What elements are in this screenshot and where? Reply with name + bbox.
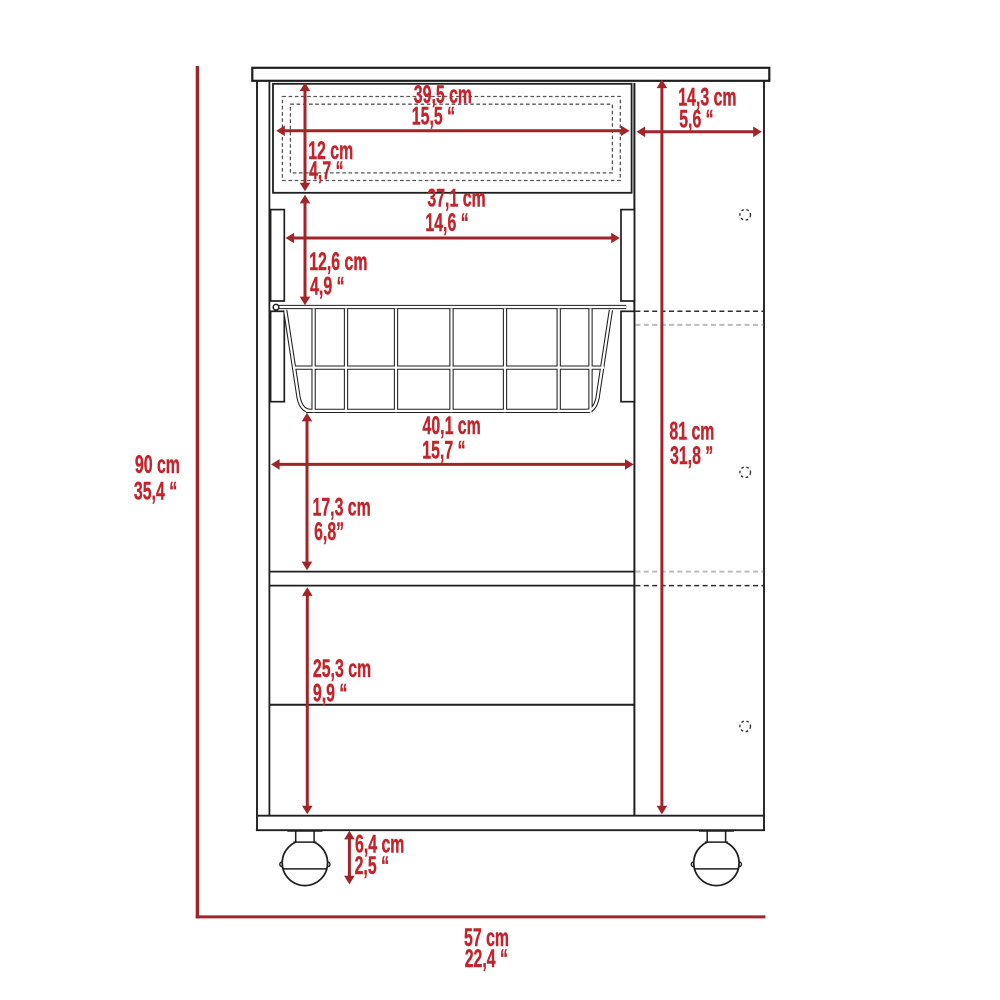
svg-text:81 cm: 81 cm <box>669 418 714 445</box>
svg-text:4,7 “: 4,7 “ <box>309 158 343 185</box>
svg-text:17,3 cm: 17,3 cm <box>313 494 371 521</box>
svg-text:6,8”: 6,8” <box>314 519 344 546</box>
svg-text:5,6 “: 5,6 “ <box>679 106 713 133</box>
svg-text:14,6 “: 14,6 “ <box>425 210 468 237</box>
svg-text:9,9 “: 9,9 “ <box>313 680 347 707</box>
svg-text:25,3 cm: 25,3 cm <box>313 656 371 683</box>
svg-text:15,7 “: 15,7 “ <box>422 437 465 464</box>
svg-text:35,4 “: 35,4 “ <box>134 478 177 505</box>
svg-text:31,8 ”: 31,8 ” <box>670 443 713 470</box>
svg-text:2,5 “: 2,5 “ <box>355 853 389 880</box>
svg-text:90 cm: 90 cm <box>135 452 180 479</box>
svg-text:22,4 “: 22,4 “ <box>465 945 508 972</box>
svg-text:4,9 “: 4,9 “ <box>310 273 344 300</box>
svg-text:40,1 cm: 40,1 cm <box>423 413 481 440</box>
svg-text:15,5 “: 15,5 “ <box>412 103 455 130</box>
svg-text:37,1 cm: 37,1 cm <box>427 185 485 212</box>
